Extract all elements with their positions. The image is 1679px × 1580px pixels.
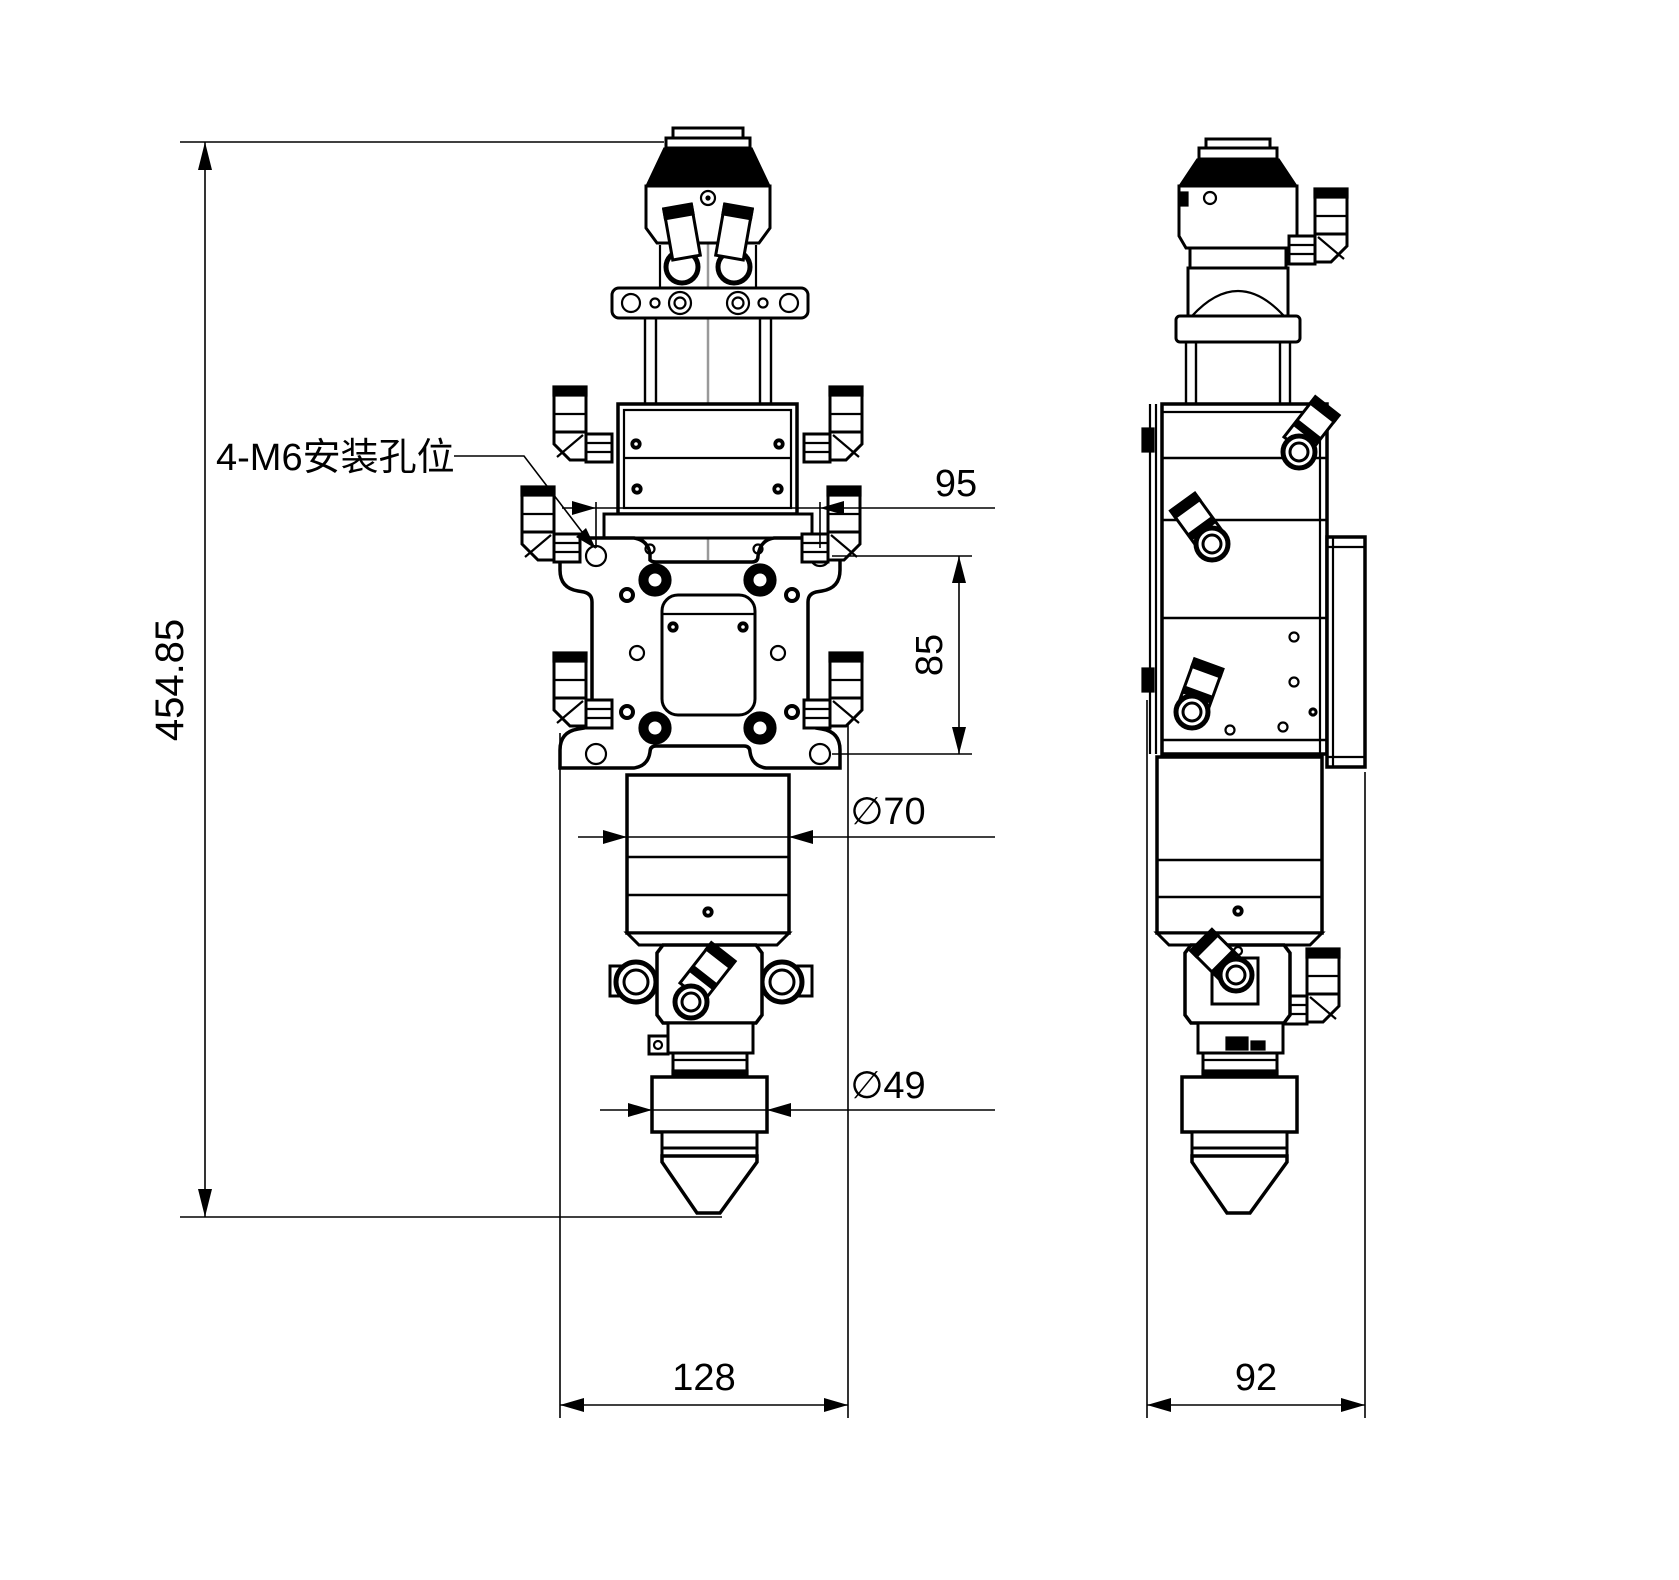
collimator-housing bbox=[604, 404, 812, 538]
focus-body-cylinder bbox=[627, 775, 789, 945]
laser-head-technical-drawing: 454.85 4-M6安装孔位 95 85 ∅70 ∅49 bbox=[0, 0, 1679, 1580]
front-view bbox=[521, 128, 863, 1213]
mounting-holes-label: 4-M6安装孔位 bbox=[216, 437, 455, 479]
side-width-text: 92 bbox=[1235, 1357, 1277, 1399]
mounting-bracket bbox=[612, 288, 808, 318]
pneumatic-elbow-fitting bbox=[521, 486, 580, 562]
overall-height-text: 454.85 bbox=[148, 619, 192, 741]
ceramic-ring bbox=[652, 1077, 767, 1132]
side-view bbox=[1142, 139, 1365, 1213]
pneumatic-elbow-fitting bbox=[804, 652, 863, 728]
body-diameter-text: ∅70 bbox=[850, 791, 925, 833]
nozzle-cone bbox=[662, 1156, 757, 1213]
angled-fitting-ring bbox=[1196, 528, 1228, 560]
front-width-text: 128 bbox=[672, 1357, 735, 1399]
plate-window bbox=[662, 595, 755, 715]
nozzle-diameter-text: ∅49 bbox=[850, 1065, 925, 1107]
hole-spacing-horizontal-text: 95 bbox=[935, 463, 977, 505]
drawing-sheet: 454.85 4-M6安装孔位 95 85 ∅70 ∅49 bbox=[0, 0, 1679, 1580]
fiber-connector-cap-side bbox=[1179, 139, 1297, 248]
connector-collar bbox=[1188, 248, 1288, 316]
nozzle-holder-block bbox=[610, 941, 812, 1023]
fiber-connector-cap bbox=[646, 128, 770, 243]
mounting-bracket-side bbox=[1176, 316, 1300, 342]
angled-fitting-ring bbox=[1220, 959, 1252, 991]
angled-fitting-ring bbox=[675, 986, 707, 1018]
focus-body-cylinder-side bbox=[1157, 757, 1322, 945]
pneumatic-elbow-fitting bbox=[804, 386, 863, 462]
ceramic-ring bbox=[1182, 1077, 1297, 1132]
nozzle-assembly-side bbox=[1182, 1023, 1297, 1213]
nozzle-assembly bbox=[649, 1023, 767, 1213]
pneumatic-elbow-fitting bbox=[553, 386, 612, 462]
nozzle-cone bbox=[1192, 1156, 1287, 1213]
side-mounting-flange bbox=[1327, 537, 1365, 767]
mounting-plate bbox=[560, 538, 840, 768]
hole-spacing-vertical-text: 85 bbox=[909, 634, 951, 676]
angled-fitting-ring bbox=[1283, 436, 1315, 468]
angled-fitting-ring bbox=[1176, 696, 1208, 728]
support-columns-side bbox=[1186, 342, 1290, 404]
